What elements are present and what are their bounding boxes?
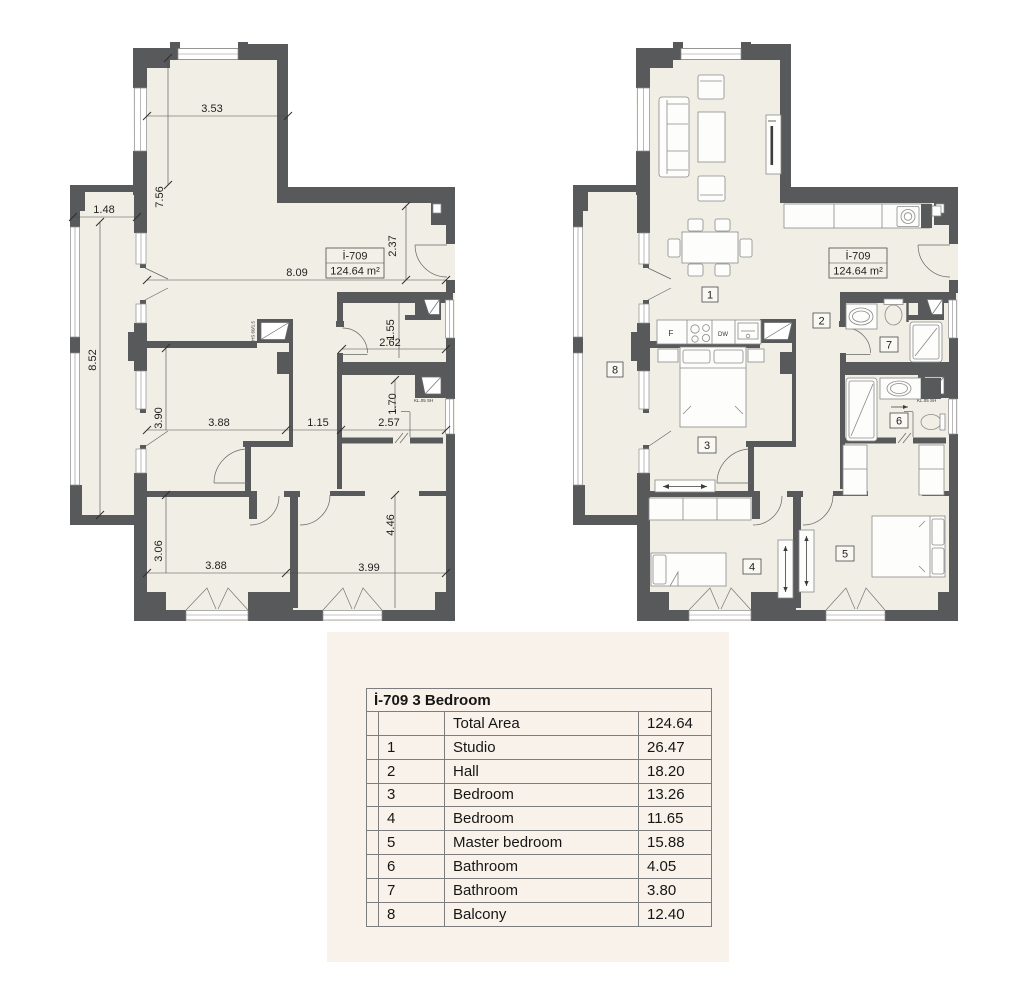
svg-text:124.64 m²: 124.64 m² [330, 266, 380, 278]
svg-text:124.64 m²: 124.64 m² [833, 266, 883, 278]
svg-text:2.62: 2.62 [379, 337, 400, 349]
svg-text:3.06: 3.06 [153, 540, 165, 561]
svg-text:3.99: 3.99 [358, 562, 379, 574]
svg-text:3.53: 3.53 [201, 103, 222, 115]
svg-text:2.57: 2.57 [378, 417, 399, 429]
svg-text:6: 6 [896, 416, 902, 428]
svg-text:1.15: 1.15 [307, 417, 328, 429]
svg-text:8: 8 [612, 365, 618, 377]
svg-text:1.48: 1.48 [93, 204, 114, 216]
svg-text:7: 7 [886, 340, 892, 352]
svg-text:4.46: 4.46 [385, 514, 397, 535]
svg-text:5: 5 [842, 549, 848, 561]
svg-text:7.56: 7.56 [154, 186, 166, 207]
svg-text:2: 2 [818, 316, 824, 328]
svg-text:3: 3 [704, 440, 710, 452]
svg-text:3.90: 3.90 [153, 407, 165, 428]
svg-text:3.88: 3.88 [205, 560, 226, 572]
svg-text:DW: DW [718, 332, 728, 338]
svg-text:3.88: 3.88 [208, 417, 229, 429]
svg-text:İ-709: İ-709 [845, 250, 870, 263]
svg-text:2.37: 2.37 [387, 235, 399, 256]
svg-text:8.09: 8.09 [286, 267, 307, 279]
svg-text:F: F [669, 329, 674, 338]
svg-text:4: 4 [749, 562, 755, 574]
svg-text:1: 1 [707, 290, 713, 302]
svg-text:8.52: 8.52 [87, 349, 99, 370]
svg-text:İ-709: İ-709 [342, 250, 367, 263]
svg-text:1.70: 1.70 [387, 393, 399, 414]
